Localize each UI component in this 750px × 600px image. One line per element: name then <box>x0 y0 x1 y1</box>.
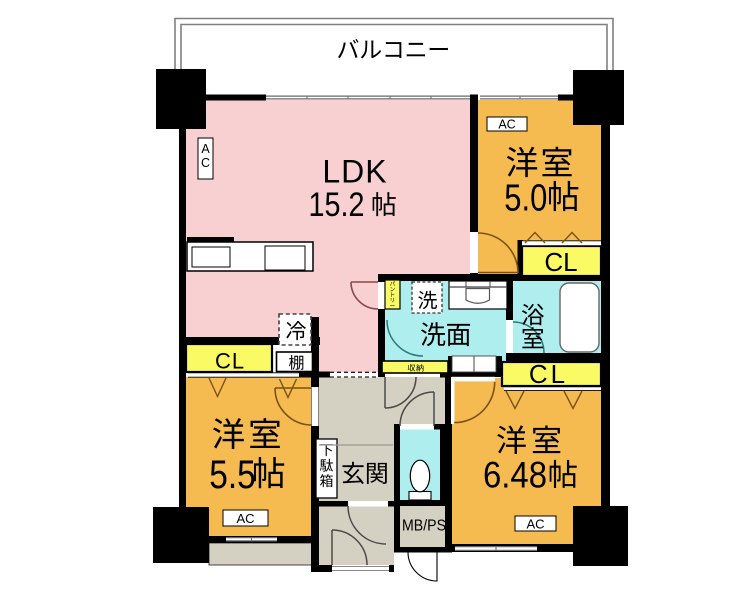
svg-text:15.2: 15.2 <box>309 186 365 224</box>
svg-text:CL: CL <box>544 247 577 277</box>
svg-text:LDK: LDK <box>322 154 387 190</box>
svg-text:5.0: 5.0 <box>504 178 547 220</box>
svg-text:MB/PS: MB/PS <box>402 518 446 535</box>
svg-text:CL: CL <box>215 349 245 374</box>
svg-text:AC: AC <box>526 517 544 532</box>
svg-text:5.5: 5.5 <box>209 453 256 497</box>
svg-text:AC: AC <box>236 511 254 526</box>
svg-text:AC: AC <box>498 118 515 132</box>
svg-text:A: A <box>201 142 210 156</box>
svg-text:6.48: 6.48 <box>483 455 547 496</box>
svg-text:C: C <box>201 156 210 170</box>
svg-text:CL: CL <box>529 359 568 389</box>
